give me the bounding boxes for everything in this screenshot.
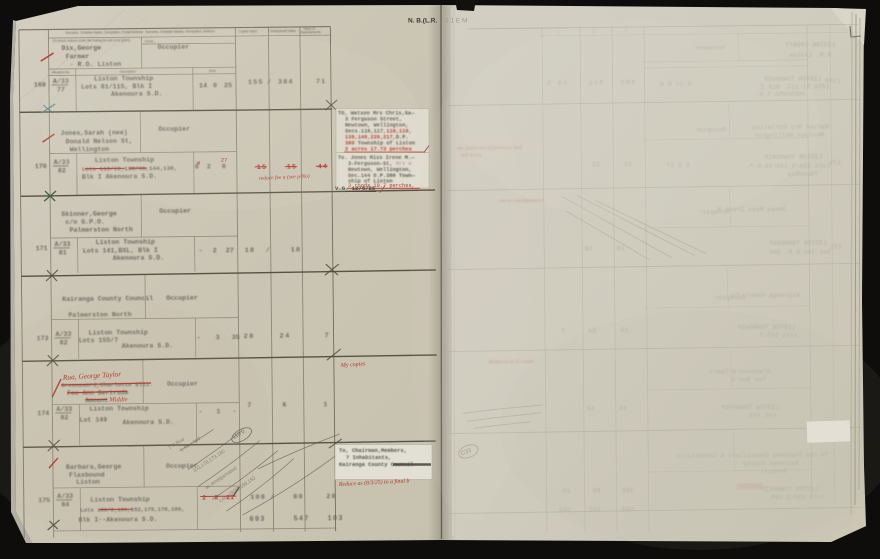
svg-text:7: 7 [325, 332, 329, 340]
svg-text:7 Inhabitants,: 7 Inhabitants, [346, 455, 391, 461]
svg-text:Sec 144 D.P. 380: Sec 144 D.P. 380 [769, 249, 831, 256]
svg-text:A/33: A/33 [55, 241, 71, 248]
svg-text:18: 18 [245, 247, 256, 255]
svg-text:LISTON TOWNSHIP: LISTON TOWNSHIP [769, 240, 827, 247]
svg-text:Liston Township: Liston Township [96, 238, 155, 246]
svg-text:Akenoura S.D.: Akenoura S.D. [113, 254, 165, 262]
svg-text:To, Chairman,Members,: To, Chairman,Members, [339, 448, 407, 454]
svg-text:81: 81 [59, 249, 67, 256]
svg-text:7: 7 [561, 328, 565, 335]
svg-text:Occupier: Occupier [159, 208, 191, 215]
svg-text:547: 547 [293, 515, 309, 523]
svg-text:80: 80 [293, 493, 304, 501]
svg-text:27: 27 [226, 247, 234, 255]
svg-text:Surname, Christian Name, Occup: Surname, Christian Name, Occupation, Pos… [65, 30, 143, 35]
svg-text:Occupier: Occupier [714, 294, 745, 301]
svg-text:171: 171 [36, 245, 48, 252]
svg-text:1: 1 [323, 401, 327, 409]
svg-text:(169: (169 [825, 77, 841, 84]
svg-text:Farmer: Farmer [66, 53, 90, 60]
svg-text:2: 2 [213, 247, 217, 255]
svg-text:Dix,George: Dix,George [62, 44, 102, 51]
svg-text:Lots 141,BXL, Blk I: Lots 141,BXL, Blk I [83, 247, 158, 255]
svg-text:28: 28 [244, 333, 255, 341]
svg-text:169: 169 [34, 82, 46, 89]
svg-text:LISTON COUNTY: LISTON COUNTY [785, 42, 835, 49]
svg-text:3 1 E M: 3 1 E M [445, 18, 467, 25]
svg-text:16: 16 [617, 245, 625, 252]
svg-text:R.D. Liston: R.D. Liston [789, 52, 831, 59]
svg-text:6: 6 [282, 402, 286, 410]
svg-text:-: - [199, 247, 203, 255]
svg-text:16: 16 [585, 245, 593, 252]
svg-text:Palmerston North: Palmerston North [69, 226, 132, 234]
svg-text:103: 103 [327, 515, 343, 523]
svg-text:693: 693 [249, 516, 265, 524]
svg-text:N. B.(L.R.: N. B.(L.R. [408, 18, 437, 25]
svg-text:170: 170 [35, 163, 47, 170]
svg-text:Improvements: Improvements [300, 30, 321, 34]
svg-text:171: 171 [830, 243, 842, 250]
svg-text:c/o G.P.O.: c/o G.P.O. [65, 218, 105, 225]
svg-text:24: 24 [280, 333, 291, 341]
svg-text:18: 18 [291, 246, 302, 254]
svg-text:82: 82 [58, 167, 66, 174]
svg-text:Occupier: Occupier [166, 294, 198, 301]
svg-text:/: / [266, 247, 270, 255]
svg-text:170: 170 [829, 159, 841, 166]
svg-text:Skinner,George: Skinner,George [61, 210, 117, 218]
svg-text:108: 108 [250, 494, 266, 502]
svg-text:(To whom notices under the Rat: (To whom notices under the Rating Act ar… [52, 38, 130, 43]
svg-text:28: 28 [326, 493, 337, 501]
